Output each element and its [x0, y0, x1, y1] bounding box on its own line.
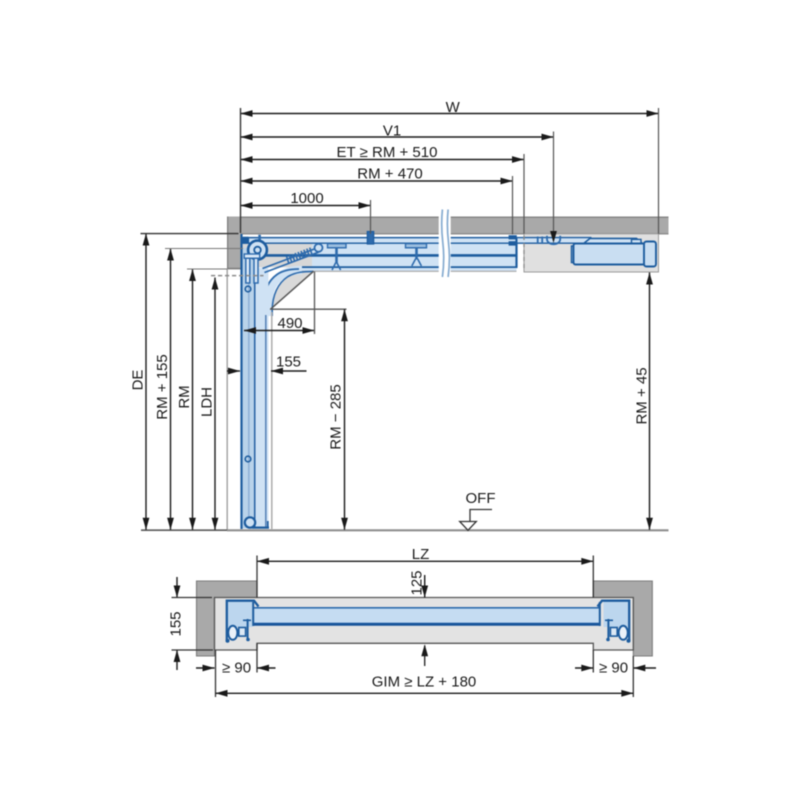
- svg-text:490: 490: [277, 315, 302, 332]
- svg-text:RM + 470: RM + 470: [357, 166, 422, 183]
- svg-text:≥ 90: ≥ 90: [599, 660, 628, 677]
- svg-text:RM + 45: RM + 45: [634, 367, 651, 424]
- svg-text:≥ 90: ≥ 90: [222, 660, 251, 677]
- svg-text:OFF: OFF: [466, 490, 496, 507]
- svg-text:DE: DE: [130, 370, 147, 391]
- svg-text:125: 125: [409, 570, 426, 595]
- svg-text:RM: RM: [176, 385, 193, 408]
- svg-text:1000: 1000: [290, 190, 323, 207]
- svg-text:155: 155: [168, 611, 185, 636]
- svg-text:V1: V1: [383, 123, 401, 140]
- svg-text:GIM ≥ LZ + 180: GIM ≥ LZ + 180: [372, 674, 477, 691]
- svg-text:155: 155: [276, 354, 301, 371]
- svg-text:LZ: LZ: [412, 546, 430, 563]
- svg-text:ET ≥ RM + 510: ET ≥ RM + 510: [337, 144, 438, 161]
- svg-text:LDH: LDH: [199, 387, 216, 417]
- svg-text:RM + 155: RM + 155: [154, 354, 171, 419]
- svg-text:RM − 285: RM − 285: [328, 384, 345, 449]
- svg-text:W: W: [446, 99, 461, 116]
